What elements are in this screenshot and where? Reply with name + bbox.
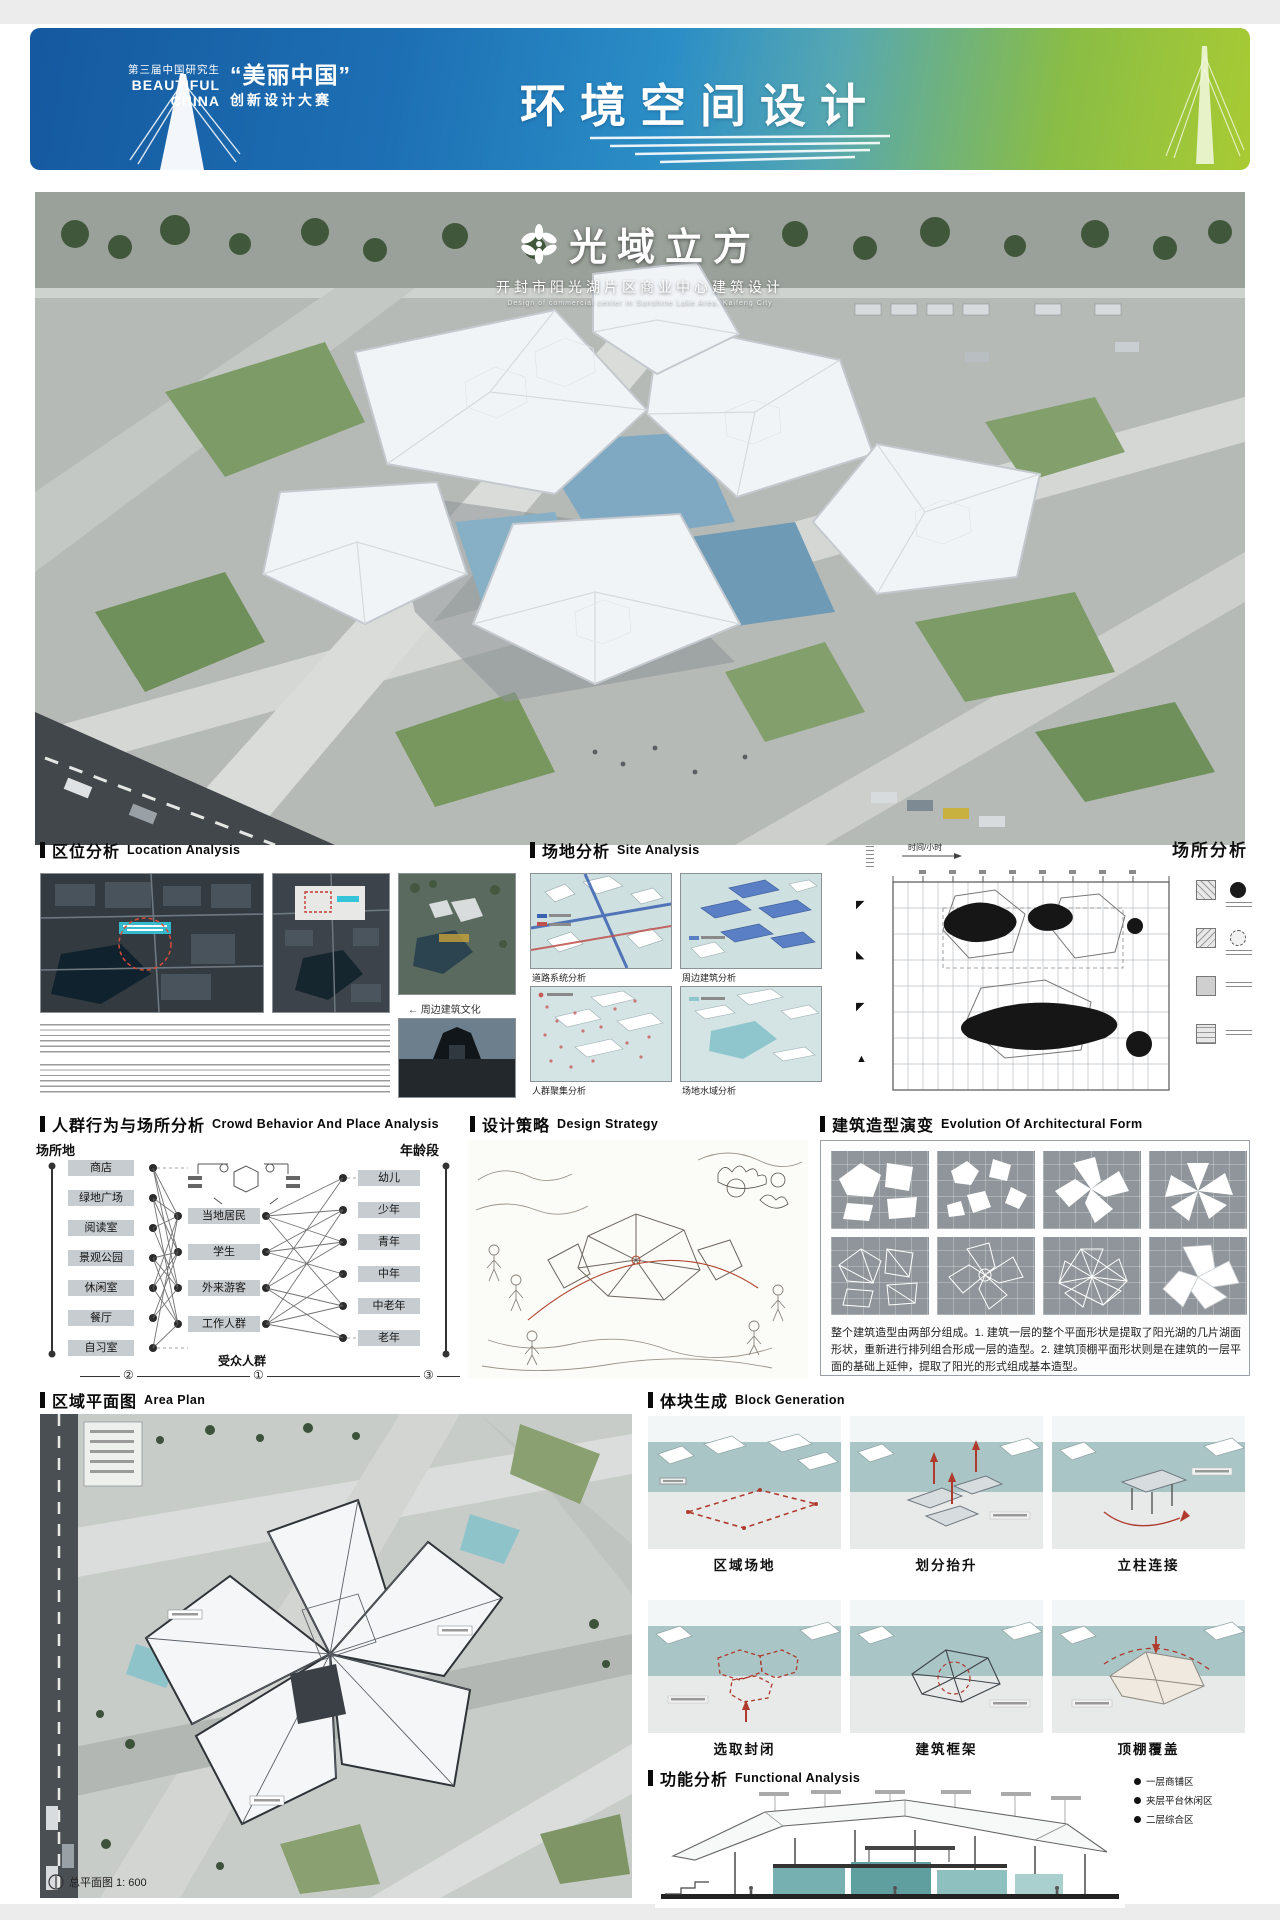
- block-step-4-enclose: [648, 1600, 841, 1733]
- strategy-sketch: [468, 1140, 808, 1378]
- section-bar: [40, 1116, 45, 1132]
- crowd-audience-label: 受众人群: [218, 1352, 266, 1369]
- section-areaplan-zh: 区域平面图: [52, 1388, 137, 1412]
- dot-icon: [1134, 1816, 1141, 1823]
- evolution-tile-8: [1149, 1237, 1247, 1315]
- site-cell-roads: [530, 873, 672, 969]
- place-legend-swatch-2: [1196, 928, 1216, 948]
- group-node-4: 工作人群: [188, 1316, 260, 1332]
- crowd-bottom-axis: [80, 1376, 460, 1377]
- zone-glyph-4: ▲: [856, 1054, 867, 1064]
- section-place-analysis: 场所分析: [1100, 836, 1248, 861]
- crowd-axis-left-label: 场所地: [36, 1140, 75, 1159]
- legend-label-3: 二层综合区: [1146, 1812, 1194, 1826]
- section-site-analysis: 场地分析 Site Analysis: [530, 838, 700, 862]
- competition-event: 创新设计大赛: [230, 90, 351, 110]
- section-bar: [530, 842, 535, 858]
- competition-logo-left: 第三届中国研究生 BEAUTIFUL CHINA: [128, 62, 220, 110]
- crowd-marker-2: ②: [120, 1368, 137, 1382]
- poster: 第三届中国研究生 BEAUTIFUL CHINA “美丽中国” 创新设计大赛 环…: [0, 0, 1280, 1920]
- project-title: 光域立方: [569, 216, 761, 271]
- place-node-6: 餐厅: [68, 1310, 134, 1326]
- section-areaplan-en: Area Plan: [144, 1393, 205, 1407]
- block-step-3-columns: [1052, 1416, 1245, 1549]
- section-bar: [40, 1392, 45, 1408]
- place-node-5: 休闲室: [68, 1280, 134, 1296]
- section-crowd-en: Crowd Behavior And Place Analysis: [212, 1117, 439, 1131]
- legend-item-3: 二层综合区: [1134, 1812, 1213, 1826]
- group-node-3: 外来游客: [188, 1280, 260, 1296]
- section-crowd-zh: 人群行为与场所分析: [52, 1112, 205, 1136]
- age-node-6: 老年: [358, 1330, 420, 1346]
- competition-logo: 第三届中国研究生 BEAUTIFUL CHINA “美丽中国” 创新设计大赛: [128, 62, 351, 110]
- evolution-tile-6: [937, 1237, 1035, 1315]
- block-step-2-lift: [850, 1416, 1043, 1549]
- time-arrow-icon: [902, 852, 962, 860]
- evolution-box: 整个建筑造型由两部分组成。1. 建筑一层的整个平面形状是提取了阳光湖的几片湖面形…: [820, 1140, 1250, 1376]
- place-node-4: 景观公园: [68, 1250, 134, 1266]
- legend-label-2: 夹层平台休闲区: [1146, 1793, 1213, 1807]
- section-bar: [820, 1116, 825, 1132]
- zone-glyph-3: ◤: [856, 1002, 864, 1012]
- section-bar: [648, 1770, 653, 1786]
- dot-icon: [1134, 1797, 1141, 1804]
- block-label-1: 区域场地: [648, 1554, 841, 1574]
- zone-glyph-1: ◤: [856, 900, 864, 910]
- section-location-analysis: 区位分析 Location Analysis: [40, 838, 240, 862]
- hero-title-block: 光域立方 开封市阳光湖片区商业中心建筑设计 Design of commerci…: [35, 216, 1245, 307]
- location-photo: [398, 1018, 516, 1098]
- block-label-4: 选取封闭: [648, 1738, 841, 1758]
- legend-item-1: 一层商铺区: [1134, 1774, 1213, 1788]
- evolution-tile-1: [831, 1151, 929, 1229]
- block-label-2: 划分抬升: [850, 1554, 1043, 1574]
- functional-section-drawing: [655, 1790, 1125, 1908]
- bridge-deck-icon: [590, 134, 890, 168]
- section-evolution-en: Evolution Of Architectural Form: [941, 1117, 1143, 1131]
- section-blocks-zh: 体块生成: [660, 1388, 728, 1412]
- flower-icon: [519, 224, 559, 264]
- top-edge-strip: [0, 0, 1280, 24]
- site-cell-crowd: [530, 986, 672, 1082]
- section-bar: [648, 1392, 653, 1408]
- block-label-6: 顶棚覆盖: [1052, 1738, 1245, 1758]
- competition-brand: “美丽中国”: [230, 62, 351, 88]
- location-satellite-map-1: [40, 873, 264, 1013]
- site-caption-3: 人群聚集分析: [532, 1084, 586, 1097]
- section-functional-zh: 功能分析: [660, 1766, 728, 1790]
- competition-logo-right: “美丽中国” 创新设计大赛: [230, 62, 351, 110]
- age-node-2: 少年: [358, 1202, 420, 1218]
- location-paragraph-1: [40, 1024, 390, 1054]
- legend-item-2: 夹层平台休闲区: [1134, 1793, 1213, 1807]
- site-caption-1: 道路系统分析: [532, 971, 586, 984]
- competition-banner: 第三届中国研究生 BEAUTIFUL CHINA “美丽中国” 创新设计大赛 环…: [30, 28, 1250, 170]
- area-plan-drawing: 总平面图 1: 600: [40, 1414, 632, 1898]
- dot-icon: [1134, 1778, 1141, 1785]
- project-subtitle: 开封市阳光湖片区商业中心建筑设计: [35, 277, 1245, 297]
- evolution-tile-2: [937, 1151, 1035, 1229]
- cluster-zone-label: [1226, 902, 1252, 910]
- place-analysis-chart: [885, 868, 1177, 1096]
- legend-label-1: 一层商铺区: [1146, 1774, 1194, 1788]
- legend-note-2: [1226, 1030, 1252, 1038]
- zone-glyph-2: ◣: [856, 950, 864, 960]
- place-node-2: 绿地广场: [68, 1190, 134, 1206]
- section-evolution: 建筑造型演变 Evolution Of Architectural Form: [820, 1112, 1143, 1136]
- site-caption-2: 周边建筑分析: [682, 971, 736, 984]
- section-site-en: Site Analysis: [617, 843, 700, 857]
- section-functional-analysis: 功能分析 Functional Analysis: [648, 1766, 860, 1790]
- location-satellite-map-2: [272, 873, 390, 1013]
- section-bar: [470, 1116, 475, 1132]
- evolution-tile-3: [1043, 1151, 1141, 1229]
- crowd-axis-right-label: 年龄段: [400, 1140, 439, 1159]
- hero-render: 光域立方 开封市阳光湖片区商业中心建筑设计 Design of commerci…: [35, 192, 1245, 845]
- section-area-plan: 区域平面图 Area Plan: [40, 1388, 205, 1412]
- block-step-5-frame: [850, 1600, 1043, 1733]
- right-pylon-icon: [1160, 46, 1250, 164]
- evolution-tile-7: [1043, 1237, 1141, 1315]
- block-step-1-site: [648, 1416, 841, 1549]
- section-site-zh: 场地分析: [542, 838, 610, 862]
- place-node-3: 阅读室: [68, 1220, 134, 1236]
- competition-en-2: CHINA: [171, 93, 220, 109]
- site-caption-4: 场地水域分析: [682, 1084, 736, 1097]
- place-node-7: 自习室: [68, 1340, 134, 1356]
- group-node-1: 当地居民: [188, 1208, 260, 1224]
- scatter-zone-label: [1226, 950, 1252, 958]
- competition-org-line: 第三届中国研究生: [128, 62, 220, 77]
- site-cell-buildings: [680, 873, 822, 969]
- site-cell-water: [680, 986, 822, 1082]
- legend-note-1: [1226, 982, 1252, 990]
- place-legend-swatch-3: [1196, 976, 1216, 996]
- section-blocks-en: Block Generation: [735, 1393, 845, 1407]
- age-node-4: 中年: [358, 1266, 420, 1282]
- scatter-zone-icon: [1230, 930, 1246, 946]
- crowd-network-diagram: 商店 绿地广场 阅读室 景观公园 休闲室 餐厅 自习室 当地居民 学生 外来游客…: [38, 1158, 468, 1363]
- place-node-1: 商店: [68, 1160, 134, 1176]
- age-node-3: 青年: [358, 1234, 420, 1250]
- location-paragraph-2: [40, 1064, 390, 1094]
- section-block-generation: 体块生成 Block Generation: [648, 1388, 845, 1412]
- section-functional-en: Functional Analysis: [735, 1771, 860, 1785]
- place-axis-label: [866, 846, 874, 868]
- section-strategy-en: Design Strategy: [557, 1117, 658, 1131]
- crowd-marker-3: ③: [420, 1368, 437, 1382]
- section-design-strategy: 设计策略 Design Strategy: [470, 1112, 658, 1136]
- north-circle-icon: [48, 1874, 64, 1890]
- project-subtitle-en: Design of commercial center in Sunshine …: [35, 300, 1245, 307]
- location-caption: ← 周边建筑文化: [408, 1001, 481, 1016]
- block-label-5: 建筑框架: [850, 1738, 1043, 1758]
- section-strategy-zh: 设计策略: [482, 1112, 550, 1136]
- block-label-3: 立柱连接: [1052, 1554, 1245, 1574]
- evolution-tile-5: [831, 1237, 929, 1315]
- group-node-2: 学生: [188, 1244, 260, 1260]
- evolution-tile-4: [1149, 1151, 1247, 1229]
- age-node-1: 幼儿: [358, 1170, 420, 1186]
- block-step-6-canopy: [1052, 1600, 1245, 1733]
- location-aerial-map-3: [398, 873, 516, 995]
- section-location-zh: 区位分析: [52, 838, 120, 862]
- cluster-zone-icon: [1230, 882, 1246, 898]
- poster-title: 环境空间设计: [460, 70, 940, 136]
- section-crowd-behavior: 人群行为与场所分析 Crowd Behavior And Place Analy…: [40, 1112, 439, 1136]
- crowd-marker-1: ①: [250, 1368, 267, 1382]
- section-evolution-zh: 建筑造型演变: [832, 1112, 934, 1136]
- section-location-en: Location Analysis: [127, 843, 240, 857]
- section-bar: [40, 842, 45, 858]
- competition-en-1: BEAUTIFUL: [132, 77, 220, 93]
- age-node-5: 中老年: [358, 1298, 420, 1314]
- evolution-caption: 整个建筑造型由两部分组成。1. 建筑一层的整个平面形状是提取了阳光湖的几片湖面形…: [831, 1325, 1241, 1376]
- functional-legend: 一层商铺区 夹层平台休闲区 二层综合区: [1134, 1774, 1213, 1826]
- place-legend-swatch-1: [1196, 880, 1216, 900]
- plan-scale-label: 总平面图 1: 600: [69, 1874, 147, 1890]
- plan-scale: 总平面图 1: 600: [48, 1874, 147, 1890]
- place-legend-swatch-4: [1196, 1024, 1216, 1044]
